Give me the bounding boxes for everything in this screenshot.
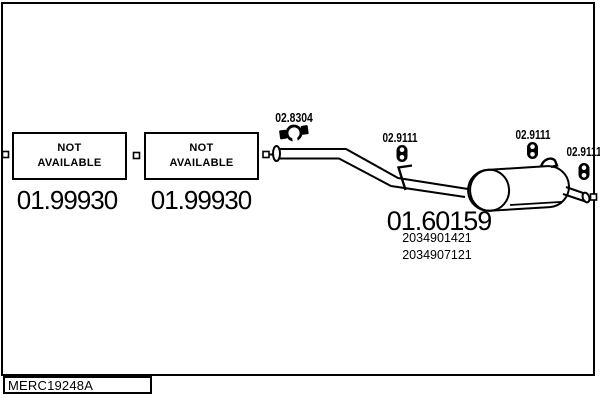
rear-silencer-body xyxy=(467,165,570,212)
hanger-rear-part-label: 02.9111 xyxy=(560,145,600,159)
drawing-code: MERC19248A xyxy=(5,378,93,393)
not-available-box-1: NOT AVAILABLE xyxy=(12,132,127,180)
part-number-front-2: 01.99930 xyxy=(143,185,259,216)
drawing-code-box: MERC19248A xyxy=(3,376,152,394)
hanger-bracket-rod xyxy=(399,166,413,191)
front-pipe xyxy=(269,146,468,197)
not-available-box-2: NOT AVAILABLE xyxy=(144,132,259,180)
pipe-clamp-icon xyxy=(279,124,310,144)
rubber-hanger-icon xyxy=(579,163,590,180)
rubber-hanger-icon xyxy=(397,145,408,162)
pipe-flange-icon xyxy=(273,146,280,161)
part-number-front-1: 01.99930 xyxy=(9,185,125,216)
exhaust-diagram-canvas: NOT AVAILABLE NOT AVAILABLE 01.99930 01.… xyxy=(0,0,600,400)
rubber-hanger-icon xyxy=(527,142,538,159)
connector-square-icon xyxy=(591,194,597,200)
not-available-text: NOT AVAILABLE xyxy=(169,141,233,171)
hanger-mid-part-label: 02.9111 xyxy=(509,128,557,142)
silencer-oem-number-1: 2034901421 xyxy=(377,231,497,245)
clamp-part-label: 02.8304 xyxy=(270,110,318,125)
silencer-oem-number-2: 2034907121 xyxy=(377,248,497,262)
hanger-front-part-label: 02.9111 xyxy=(376,131,424,145)
not-available-text: NOT AVAILABLE xyxy=(37,141,101,171)
